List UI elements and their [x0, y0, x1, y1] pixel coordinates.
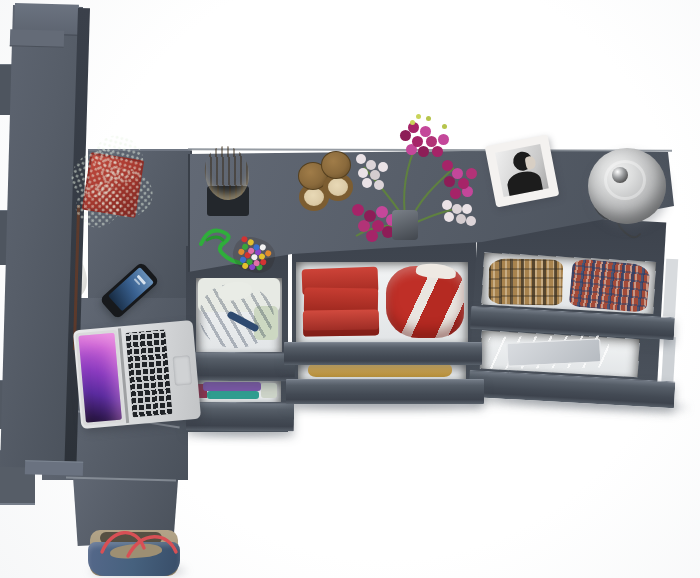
laptop-trackpad: [173, 355, 192, 385]
portrait-shoulders: [506, 169, 544, 197]
plaid-shirt-red: [569, 258, 651, 313]
laptop-screen: [75, 330, 125, 426]
drawer-c1-interior: [481, 253, 656, 315]
drawer-b1-front: [284, 342, 482, 365]
drawer-a2-front: [186, 401, 294, 431]
flower-cluster-white: [356, 154, 366, 164]
wardrobe-upper-ledge: [10, 29, 64, 48]
beads: [241, 235, 249, 243]
portrait-face: [524, 155, 536, 170]
photo-frame: [485, 134, 560, 207]
drawer-b2-front: [286, 379, 484, 404]
drawer-a2-interior: [197, 380, 281, 402]
flower-cluster-magenta: [352, 204, 364, 216]
plaid-shirt-tan: [488, 258, 563, 306]
laptop: [73, 320, 201, 429]
flower-cluster-white: [442, 200, 452, 210]
furniture-top-view-render: [0, 0, 700, 578]
red-towel: [303, 309, 379, 336]
folded-teal: [207, 391, 259, 399]
flower-bouquet: [346, 112, 486, 244]
folded-gray-sheet: [506, 338, 601, 367]
drawer-a1-interior: [196, 278, 282, 352]
drawer-b1-interior: [296, 262, 468, 342]
folded-purple: [203, 382, 261, 391]
bag-handles: [84, 520, 188, 564]
folded-light-cloth: [261, 383, 277, 398]
wardrobe-end-face: [25, 460, 83, 476]
drawer-side-panel: [663, 259, 678, 318]
folded-yellow-cloth: [308, 363, 452, 377]
drawer-unit-c-group: [465, 222, 687, 426]
red-towel-stack: [302, 268, 380, 338]
framed-photo: [495, 144, 549, 197]
laptop-wallpaper: [78, 333, 121, 423]
flower-cluster-magenta: [442, 160, 453, 171]
plant-foliage: [64, 134, 156, 230]
tote-bag: [84, 520, 188, 578]
flower-cluster-magenta: [408, 122, 419, 133]
laptop-keyboard: [125, 329, 172, 417]
flower-vase: [392, 210, 418, 240]
flower-buds: [416, 114, 421, 119]
drawer-a1-front: [183, 351, 295, 381]
lamp-chrome-center: [612, 167, 628, 183]
